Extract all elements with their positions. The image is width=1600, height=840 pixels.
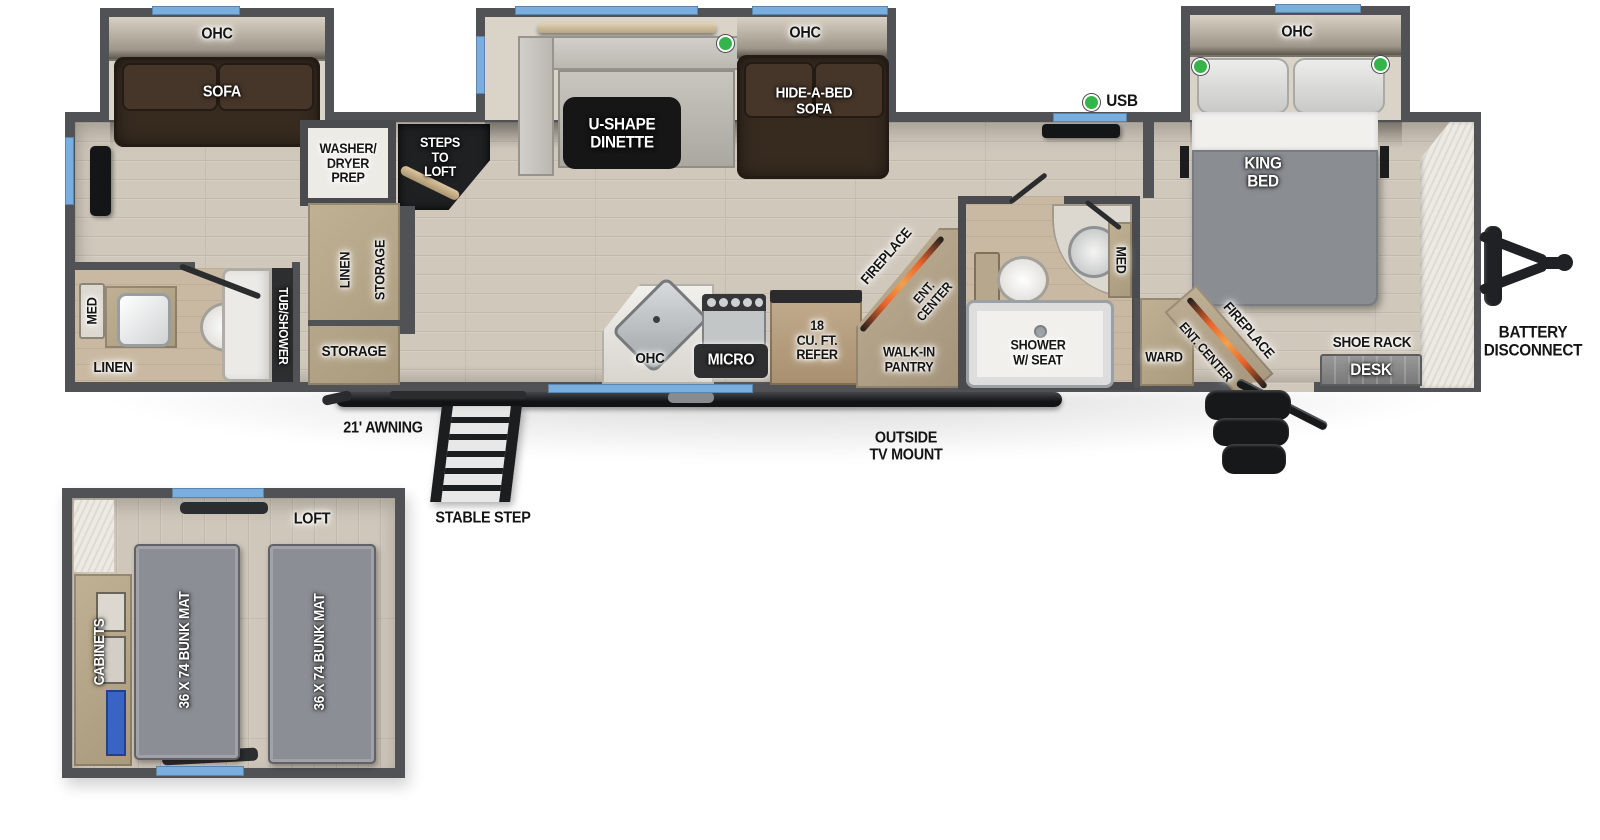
entry-step (1205, 390, 1291, 420)
front-storage (1420, 122, 1474, 388)
window (752, 6, 888, 15)
label-ohc-king: OHC (1281, 25, 1312, 42)
label-refer: 18 CU. FT. REFER (796, 318, 837, 362)
label-med-mid: MED (1114, 246, 1129, 273)
window (515, 6, 698, 15)
entry-step (1222, 444, 1286, 474)
label-outside-tv-mount: OUTSIDE TV MOUNT (869, 430, 942, 463)
window (65, 137, 74, 205)
king-pillow-left (1197, 58, 1289, 114)
label-kitchen-ohc: OHC (635, 351, 664, 367)
stable-step-ladder (430, 406, 522, 502)
nightstand-right (1380, 146, 1389, 178)
usb-dot-bed-right (1372, 56, 1389, 73)
hitch-knob (1556, 254, 1573, 271)
label-hide-a-bed-sofa: HIDE-A-BED SOFA (776, 85, 853, 116)
label-stable-step: STABLE STEP (435, 511, 530, 528)
label-linen-rear: LINEN (93, 360, 132, 376)
usb-dot-dinette (717, 35, 734, 52)
window (156, 766, 244, 776)
rear-wall-tv (90, 146, 111, 216)
rv-floorplan: OHC SOFA U-SHAPE DINETTE OHC HIDE-A-BED … (0, 0, 1600, 840)
label-loft: LOFT (294, 512, 331, 529)
label-desk: DESK (1350, 361, 1391, 379)
label-micro: MICRO (708, 353, 755, 370)
label-usb: USB (1106, 92, 1138, 110)
label-shower-w-seat: SHOWER W/ SEAT (1010, 337, 1065, 366)
label-walk-in-pantry: WALK-IN PANTRY (883, 344, 935, 373)
label-storage-room: STORAGE (322, 344, 387, 360)
wall-segment (1143, 112, 1154, 198)
label-bunk-left: 36 X 74 BUNK MAT (177, 592, 193, 709)
rear-bath-sink (117, 293, 171, 347)
entry-step (1213, 418, 1289, 446)
window (1053, 113, 1127, 122)
window (172, 488, 264, 498)
window (152, 6, 240, 15)
label-med-rear: MED (85, 297, 100, 324)
loft-corner-panel (74, 500, 114, 572)
dinette-bench-left (518, 36, 554, 176)
nightstand-left (1180, 146, 1189, 178)
closet-divider (308, 320, 400, 326)
dinette-valance (538, 23, 716, 33)
outside-tv-bracket (668, 392, 714, 403)
label-ohc-dinette: OHC (789, 26, 820, 43)
label-awning: 21' AWNING (343, 421, 422, 438)
wall-segment (400, 206, 415, 334)
label-ward: WARD (1145, 350, 1182, 365)
label-king-bed: KING BED (1244, 154, 1281, 189)
label-bunk-right: 36 X 74 BUNK MAT (312, 594, 328, 711)
usb-dot-bed-left (1192, 58, 1209, 75)
window (548, 384, 753, 393)
corridor-tv (1042, 124, 1120, 138)
label-ohc-rear: OHC (201, 27, 232, 44)
rear-bath-wall (75, 262, 195, 270)
label-shoe-rack: SHOE RACK (1333, 335, 1412, 351)
window (476, 36, 485, 94)
king-bed-blanket (1192, 150, 1378, 306)
label-linen-closet: LINEN (338, 252, 353, 288)
window (1275, 4, 1361, 13)
label-u-shape-dinette: U-SHAPE DINETTE (589, 115, 656, 150)
rear-bath-wall (292, 262, 300, 382)
camp-door-threshold (390, 391, 526, 399)
usb-dot-legend (1083, 94, 1100, 111)
label-washer-dryer-prep: WASHER/ DRYER PREP (320, 141, 377, 185)
label-battery-disconnect: BATTERY DISCONNECT (1484, 323, 1582, 358)
king-bed-sheet (1192, 112, 1378, 152)
rear-sofa (114, 57, 320, 147)
king-pillow-right (1293, 58, 1385, 114)
label-storage-closet: STORAGE (373, 240, 388, 300)
label-cabinets: CABINETS (92, 619, 108, 686)
label-tub-shower: TUB/SHOWER (276, 287, 290, 364)
stove (702, 294, 766, 350)
label-sofa: SOFA (203, 85, 241, 102)
mid-bath-toilet-bowl (997, 256, 1049, 304)
label-steps-to-loft: STEPS TO LOFT (420, 135, 460, 179)
loft-vent-top (180, 502, 268, 514)
kitchen-sink-drain (653, 316, 660, 323)
wall-segment (1134, 298, 1140, 388)
